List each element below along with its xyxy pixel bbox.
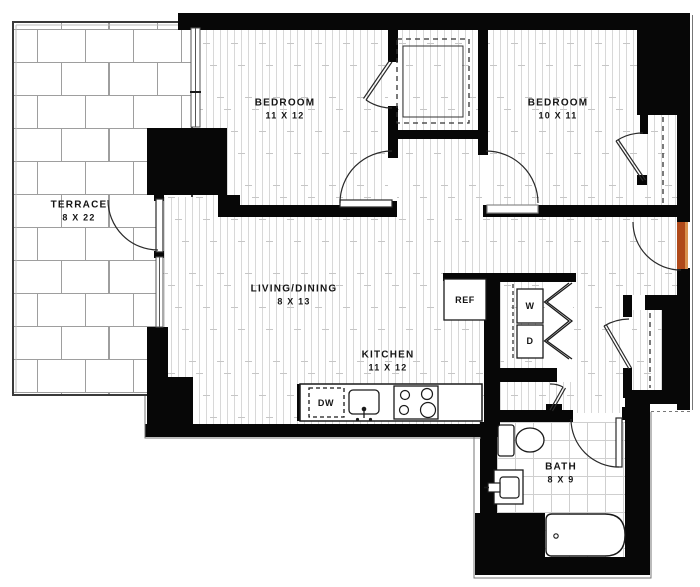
room-label-bedroom1: BEDROOM 11 X 12 <box>255 97 316 122</box>
bedroom1-dims: 11 X 12 <box>255 110 316 122</box>
floor-plan: TERRACE 8 X 22 BEDROOM 11 X 12 BEDROOM 1… <box>0 0 700 587</box>
bifold-doors-icon <box>545 283 573 359</box>
floor-plan-drawing <box>0 0 700 587</box>
terrace-dims: 8 X 22 <box>51 212 108 224</box>
wood-floors <box>163 30 677 424</box>
living-window <box>156 257 163 327</box>
living-name: LIVING/DINING <box>251 283 338 296</box>
kitchen-dims: 11 X 12 <box>362 362 415 374</box>
stove-icon <box>394 386 438 419</box>
bedroom1-window <box>190 28 201 127</box>
dryer-label: D <box>526 336 533 346</box>
refrigerator-label: REF <box>455 295 475 305</box>
terrace-name: TERRACE <box>51 199 108 212</box>
room-label-kitchen: KITCHEN 11 X 12 <box>362 349 415 374</box>
dishwasher-label: DW <box>318 398 334 408</box>
room-label-bath: BATH 8 X 9 <box>545 461 577 486</box>
bathtub-icon <box>546 514 625 556</box>
living-dims: 8 X 13 <box>251 296 338 308</box>
room-label-bedroom2: BEDROOM 10 X 11 <box>528 97 589 122</box>
room-label-living: LIVING/DINING 8 X 13 <box>251 283 338 308</box>
kitchen-name: KITCHEN <box>362 349 415 362</box>
bedroom2-name: BEDROOM <box>528 97 589 110</box>
bedroom2-dims: 10 X 11 <box>528 110 589 122</box>
bath-name: BATH <box>545 461 577 474</box>
bath-dims: 8 X 9 <box>545 474 577 486</box>
washer-label: W <box>525 301 534 311</box>
room-label-terrace: TERRACE 8 X 22 <box>51 199 108 224</box>
bedroom1-name: BEDROOM <box>255 97 316 110</box>
